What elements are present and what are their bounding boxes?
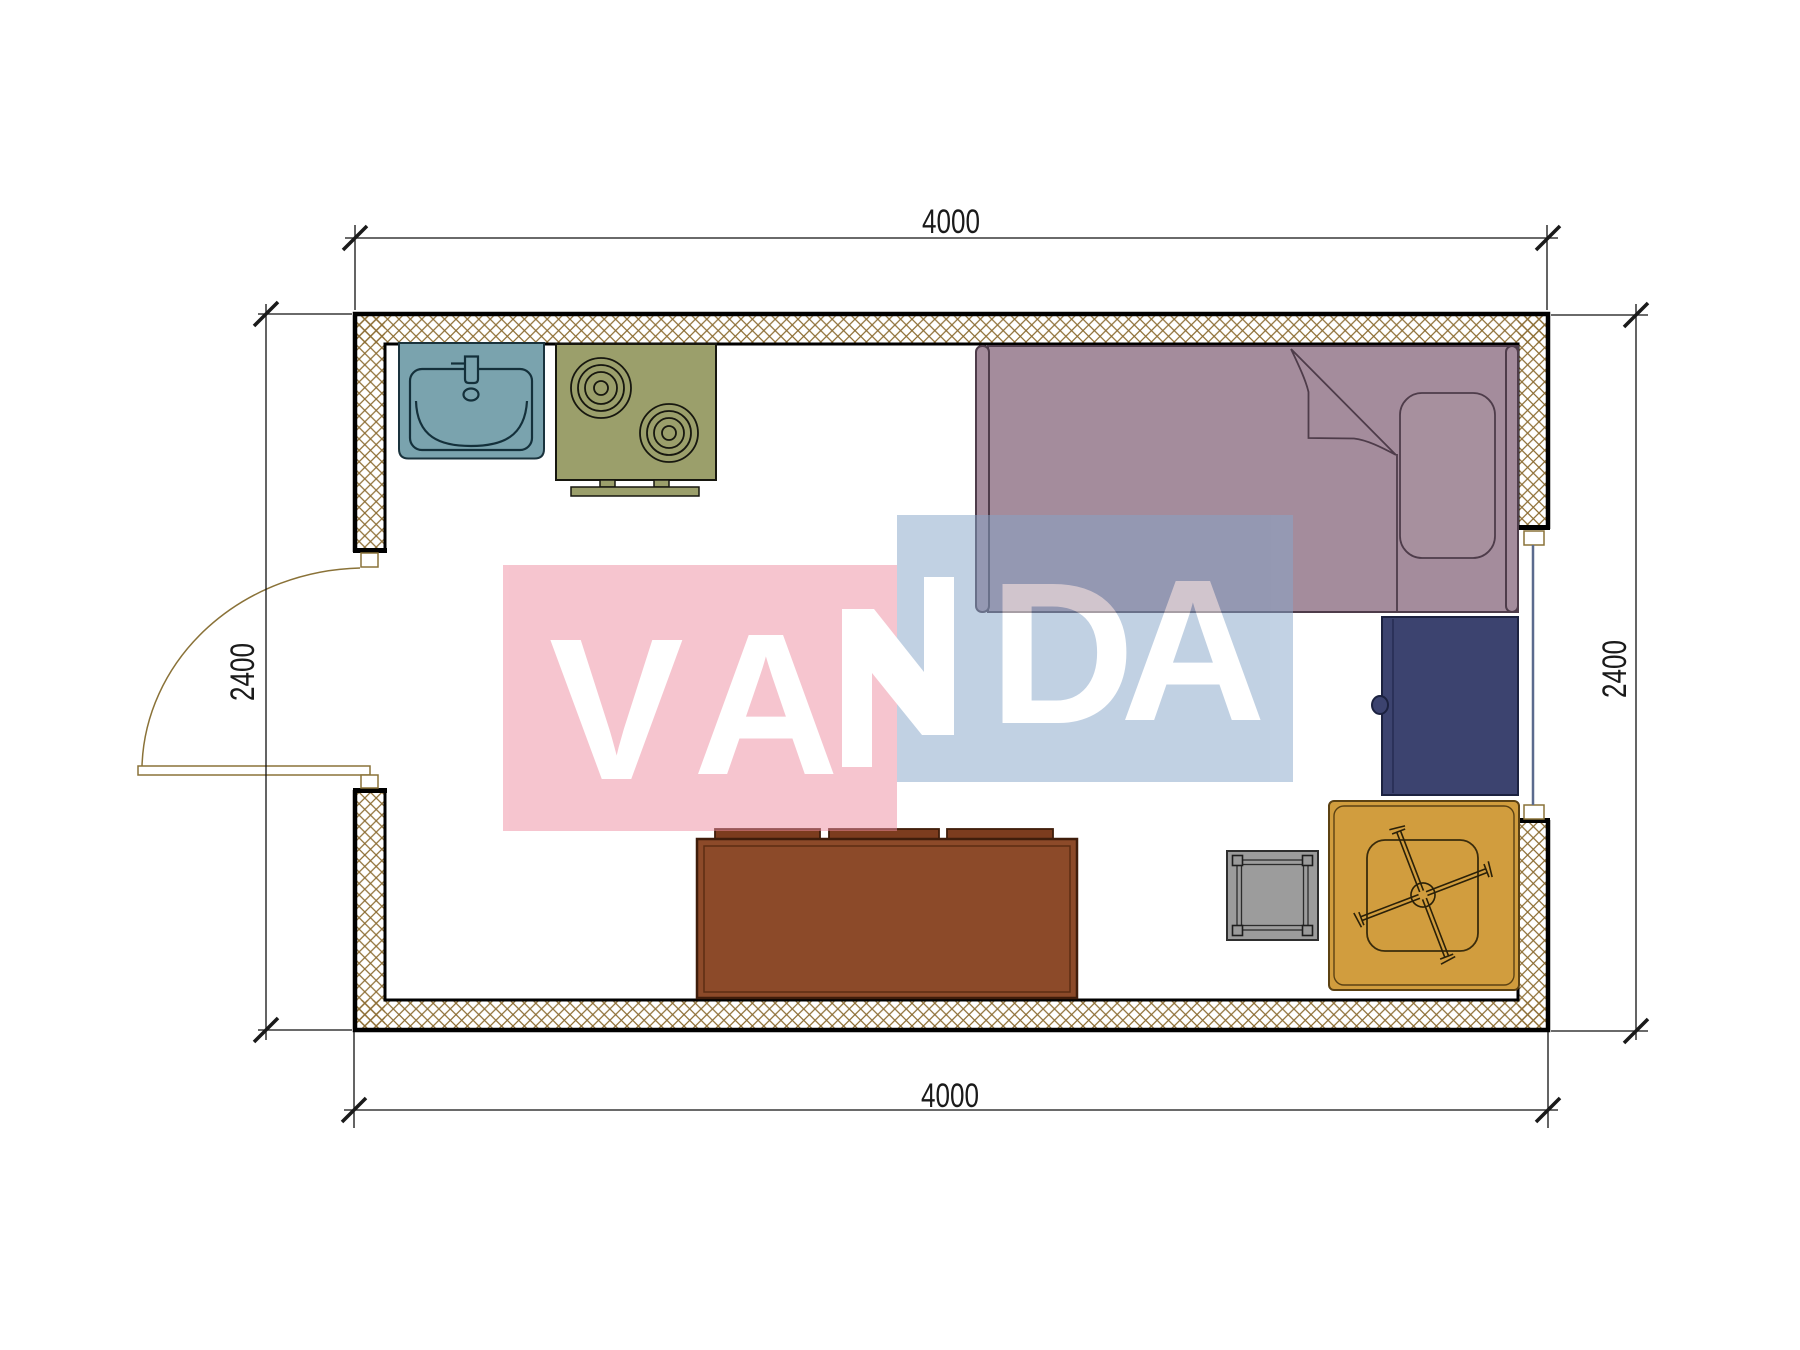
svg-text:2400: 2400	[1596, 640, 1634, 698]
svg-text:A: A	[1120, 537, 1266, 763]
svg-text:2400: 2400	[224, 643, 262, 701]
svg-text:4000: 4000	[922, 203, 980, 241]
svg-text:D: D	[989, 540, 1135, 766]
svg-text:V: V	[549, 596, 684, 822]
svg-text:A: A	[693, 591, 839, 817]
svg-text:4000: 4000	[921, 1077, 979, 1115]
